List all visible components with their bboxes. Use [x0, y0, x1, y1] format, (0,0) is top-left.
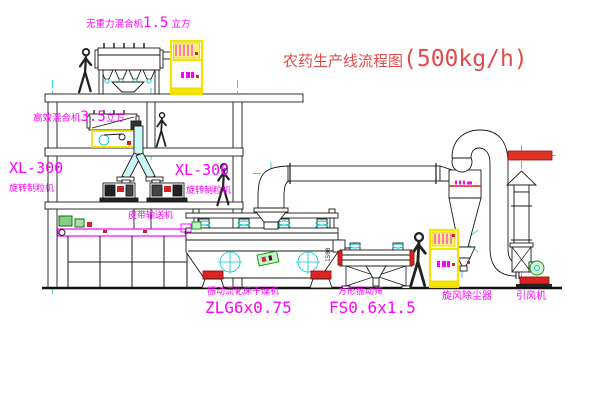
label-fluid-bed-dryer-name: 振动流化床干燥机 — [207, 288, 279, 297]
diagram-title: 农药生产线流程图(500kg/h) — [283, 48, 528, 71]
process-flow-diagram: 1500 无重力混合机1.5 立方 高效混合机3.5立方 XL-300 旋转制粒… — [0, 0, 600, 403]
label-cyclone: 旋风除尘器 — [442, 292, 492, 302]
label-vibrating-screen-model: FS0.6x1.5 — [329, 300, 416, 316]
fluid-bed-dryer — [181, 209, 338, 288]
title-text: 农药生产线流程图 — [283, 52, 403, 70]
mid-column — [147, 100, 155, 150]
indicator-light — [452, 263, 455, 266]
red-duct-section — [508, 151, 552, 160]
induced-draft-fan — [510, 243, 552, 287]
label-text: 高效混合机 — [33, 113, 81, 124]
granulator-right — [147, 180, 187, 202]
conveyor-legs — [68, 236, 187, 288]
feed-hopper — [59, 216, 72, 226]
indicator-light — [195, 52, 198, 55]
title-capacity: (500kg/h) — [403, 46, 528, 72]
label-granulator-name-left: 旋转制粒机 — [9, 185, 54, 194]
roof-slab — [45, 94, 303, 102]
label-fluid-bed-dryer-model: ZLG6x0.75 — [205, 300, 292, 316]
label-granulator-name-right: 旋转制粒机 — [186, 187, 231, 196]
label-granulator-model-left: XL-300 — [9, 161, 63, 176]
worker-on-roof — [79, 49, 91, 92]
label-belt-conveyor: 皮带输送机 — [128, 212, 173, 221]
label-granulator-model-right: XL-300 — [175, 163, 229, 178]
control-cabinet-2 — [430, 230, 458, 287]
label-text: 立方 — [106, 113, 125, 124]
floor3-slab — [45, 202, 243, 209]
cabinet-knobs — [437, 261, 450, 267]
label-high-efficiency-mixer: 高效混合机3.5立方 — [33, 108, 125, 124]
granulator-left — [100, 180, 138, 202]
label-text: 无重力混合机 — [86, 19, 143, 30]
fan-base — [520, 277, 549, 284]
cabinet-knobs — [181, 72, 194, 78]
indicator-light — [196, 75, 199, 78]
label-text: 立方 — [168, 19, 190, 30]
label-vibrating-screen-name: 方形振动筛 — [338, 288, 383, 297]
label-value: 1.5 — [143, 15, 168, 31]
vibrating-screen — [333, 240, 414, 289]
gravity-free-mixer — [95, 43, 171, 94]
exhaust-stack — [507, 171, 536, 245]
belt-conveyor — [58, 216, 192, 288]
mixer-discharge-funnels — [101, 70, 155, 83]
screen-dimension-label: 1500 — [325, 247, 332, 262]
control-cabinet-1 — [171, 41, 202, 94]
worker-floor2 — [157, 113, 166, 147]
label-gravity-mixer: 无重力混合机1.5 立方 — [86, 14, 190, 30]
label-value: 3.5 — [81, 109, 106, 125]
indicator-light — [452, 234, 455, 237]
label-induced-draft-fan: 引风机 — [516, 292, 546, 302]
